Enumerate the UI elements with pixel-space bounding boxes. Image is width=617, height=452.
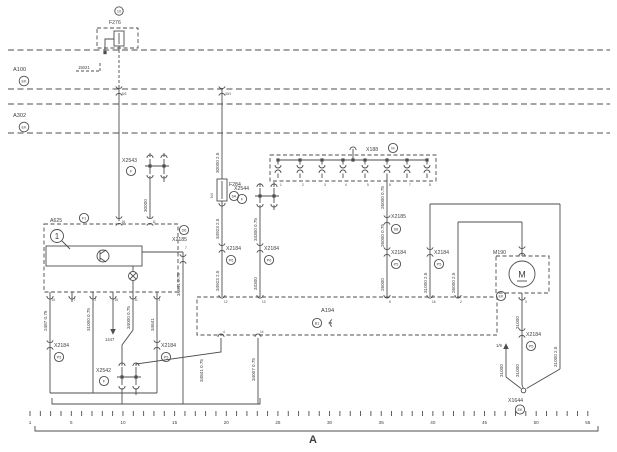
ref-label: 15021 (78, 65, 90, 70)
pin-number: 4 (223, 330, 225, 334)
wire-label: 31000 (499, 364, 504, 377)
ruler-number: 35 (379, 420, 385, 425)
pin-number: 16 (122, 220, 126, 224)
pin-number: 2 (460, 300, 462, 304)
terminal-square (103, 51, 106, 54)
module-box (44, 224, 178, 292)
component-label: X2185 (391, 214, 406, 220)
location-badge-text: EK (498, 295, 504, 299)
pin-number: 3 (525, 300, 527, 304)
pin-number: 12 (224, 300, 228, 304)
pin-number: 13 (262, 300, 266, 304)
ruler-number: 50 (534, 420, 540, 425)
component-label: A100 (13, 67, 26, 73)
pin-number: 16 (432, 300, 436, 304)
pin-number: 11 (135, 298, 139, 302)
pin-number: 10 (52, 298, 56, 302)
ruler-number: 5 (70, 420, 73, 425)
component-label: X2184 (391, 250, 406, 256)
wire-feed-left: 5/3 (116, 50, 127, 221)
tap-label: 5/3 (122, 92, 127, 96)
pin-icon (384, 160, 390, 178)
component-label: F276 (109, 20, 121, 26)
location-badge-text: P5 (437, 263, 442, 267)
location-badge-text: P5 (529, 345, 534, 349)
pin-icon (297, 160, 303, 178)
connector-x2542: X2542 F (96, 363, 141, 404)
wire-label: 30000 2.5 (215, 152, 220, 173)
wire-label: 34300 0.75 (253, 218, 258, 241)
pin-number: 14 (260, 330, 264, 334)
location-badge-text: M (391, 147, 394, 151)
pin-number: 6 (389, 183, 391, 187)
connector-x188: X188 M 1 2 3 4 5 6 7 8 (270, 143, 436, 187)
pin-number: 1 (280, 183, 282, 187)
component-a625: A625 F1 1 16 11 10 7 2 15 11 1 (44, 213, 178, 302)
location-badge-text: P5 (164, 356, 169, 360)
location-badge-text: EK (517, 408, 523, 412)
power-badge-text: 10 (117, 10, 121, 14)
component-label: X2542 (96, 368, 111, 374)
wire-label: 34641 (150, 318, 155, 331)
ruler-number: 30 (327, 420, 333, 425)
wire-label: 34841 0.75 (199, 359, 204, 382)
wire-label: 34000 0.75 (126, 306, 131, 329)
component-label: X188 (366, 147, 378, 153)
component-label: A625 (50, 218, 62, 224)
wire-label: 31000 (515, 316, 520, 329)
component-f276: 10 F276 (97, 7, 138, 54)
ruler-number: 1 (29, 420, 32, 425)
wire-chain-26000: 26000 0.75 X2185 D8 26000 0.75 X2184 P5 … (380, 178, 406, 297)
wire-label: 31000 2.5 (423, 272, 428, 293)
connector-x2185-a: D6 X2185 7 34641 0.75 (142, 225, 189, 404)
plug-glyph-icon (329, 320, 333, 327)
pin-number: 7 (409, 183, 411, 187)
pin-number: 2 (302, 183, 304, 187)
connector-x2543: X2543 F 30000 (122, 153, 169, 218)
wire-label: 34007 0.75 (251, 358, 256, 381)
pin-number: 5 (367, 183, 369, 187)
pin-number: 7 (185, 246, 187, 250)
component-label: M190 (493, 250, 506, 256)
pin-icon (362, 160, 368, 178)
location-badge-text: F (103, 380, 106, 384)
wire-label: 30000 (143, 199, 148, 212)
ref-label: 1447 (105, 337, 115, 342)
motor-letter: M (518, 270, 526, 280)
component-label: X2184 (54, 343, 69, 349)
pin-number: 4 (345, 183, 347, 187)
component-label: X2185 (172, 237, 187, 243)
component-label: X2543 (122, 158, 137, 164)
pin-icon (319, 160, 325, 178)
pin-number: 1 (159, 298, 161, 302)
pin-icon (218, 334, 224, 337)
wiring-diagram-page: A100 EK A302 EK 10 F276 15021 5/3 30/1 (0, 0, 617, 452)
wire-label: 26000 0.75 (380, 224, 385, 247)
ruler-number: 15 (172, 420, 178, 425)
component-label: X1644 (508, 398, 523, 404)
arrow-up-icon (503, 343, 509, 349)
pin-icon (340, 160, 346, 178)
location-badge-text: P5 (394, 263, 399, 267)
pin-number: 2 (95, 298, 97, 302)
pin-number: 8 (429, 183, 431, 187)
pin-icon (424, 160, 430, 178)
ruler-number: 40 (430, 420, 436, 425)
wire-label: 34300 (253, 277, 258, 290)
location-badge-text: D6 (182, 229, 187, 233)
component-f284: F284 N4 6A 34923 2.5 34923 2.5 (210, 179, 241, 297)
splice-x1644: 1/9 31000 X1644 EK (496, 343, 526, 414)
component-label: A194 (321, 308, 334, 314)
location-badge-text: F (241, 198, 244, 202)
callout-number: 1 (55, 232, 60, 241)
wires-below-a625: 2487 0.75 X2184 P5 31000 0.75 1447 34000… (43, 298, 260, 404)
wiring-diagram: A100 EK A302 EK 10 F276 15021 5/3 30/1 (0, 0, 617, 452)
location-badge-text: P6 (229, 259, 234, 263)
ref-label: 1/9 (496, 343, 502, 348)
wire-label: 34923 2.5 (215, 218, 220, 239)
pin-icon (404, 160, 410, 178)
section-bracket: A (35, 426, 598, 446)
connector-x2544: X2544 F 34300 0.75 34300 (234, 182, 279, 297)
ruler: 1510152025303540455055 (29, 411, 591, 425)
pin-icon (255, 334, 261, 337)
location-badge-text: P5 (57, 356, 62, 360)
component-label: X2184 (526, 332, 541, 338)
component-a194: A194 B1 12 13 6 16 2 4 14 34841 0.75 340… (136, 295, 497, 404)
bus-lines (8, 50, 610, 133)
wire-label: 34641 0.75 (176, 273, 181, 296)
location-badge-text: F1 (82, 217, 86, 221)
ruler-number: 55 (585, 420, 591, 425)
tap-label: 30/1 (225, 92, 231, 96)
ruler-number: 45 (482, 420, 488, 425)
wire-label: 31000 (515, 364, 520, 377)
pin-number: 6 (389, 300, 391, 304)
component-label: X2184 (161, 343, 176, 349)
ruler-number: 20 (224, 420, 230, 425)
ruler-number: 10 (120, 420, 126, 425)
wire-label: 34923 2.5 (215, 270, 220, 291)
section-label: A (309, 434, 317, 446)
wire-label: 31000 0.75 (86, 308, 91, 331)
location-badge-text: P6 (267, 259, 272, 263)
pin-number: 15 (115, 298, 119, 302)
pin-number: 11 (153, 220, 157, 224)
splice-point (521, 388, 526, 393)
component-a302: A302 EK (13, 113, 29, 132)
ref-15021: 15021 (76, 63, 100, 71)
component-label: X2184 (434, 250, 449, 256)
ruler-number: 25 (275, 420, 281, 425)
location-badge-text: EK (21, 126, 27, 130)
location-badge-text: EK (21, 80, 27, 84)
component-label: A302 (13, 113, 26, 119)
wire-chain-ground-right: X2184 P5 31000 2.5 31000 2.5 (423, 204, 560, 389)
pin-number: 3 (324, 183, 326, 187)
module-box (197, 297, 497, 335)
location-badge-text: F (130, 170, 133, 174)
module-body (46, 246, 142, 266)
component-m190: 26000 2.5 M190 M EK 3 31000 X2184 P5 310… (451, 222, 549, 388)
component-a100: A100 EK (13, 67, 29, 86)
wire-label: 26000 2.5 (451, 272, 456, 293)
location-badge-text: B1 (315, 322, 320, 326)
arrow-down-icon (110, 329, 116, 335)
component-label: X2184 (226, 246, 241, 252)
wire-label: 26000 (380, 278, 385, 291)
pin-icon (275, 160, 281, 178)
fuse-slot-label: N4 (210, 193, 214, 198)
wire-label: 2487 0.75 (43, 310, 48, 331)
component-label: X2184 (264, 246, 279, 252)
location-badge-text: D8 (394, 228, 399, 232)
pin-number: 7 (74, 298, 76, 302)
wire-label: 31000 2.5 (553, 346, 558, 367)
location-badge-text: 6A (232, 195, 237, 199)
component-label: X2544 (234, 186, 249, 192)
wire-label: 26000 0.75 (380, 186, 385, 209)
